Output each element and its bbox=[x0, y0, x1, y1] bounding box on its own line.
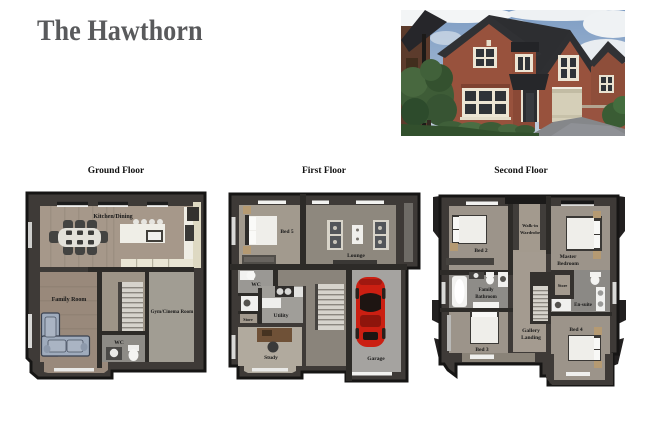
svg-text:Utility: Utility bbox=[274, 313, 289, 319]
svg-text:WC: WC bbox=[114, 340, 124, 346]
svg-text:Gym/Cinema Room: Gym/Cinema Room bbox=[151, 310, 194, 315]
svg-text:Bed 5: Bed 5 bbox=[280, 229, 294, 235]
svg-text:Bathroom: Bathroom bbox=[475, 295, 497, 300]
svg-text:Gallery: Gallery bbox=[522, 328, 540, 334]
svg-text:Bed 4: Bed 4 bbox=[569, 327, 583, 333]
svg-text:Store: Store bbox=[243, 317, 253, 322]
svg-text:Kitchen/Dining: Kitchen/Dining bbox=[93, 214, 132, 220]
svg-text:Wardrobe: Wardrobe bbox=[520, 230, 540, 235]
svg-text:Master: Master bbox=[560, 254, 577, 260]
svg-text:Bed 2: Bed 2 bbox=[474, 248, 488, 254]
svg-text:Family Room: Family Room bbox=[52, 297, 87, 303]
svg-text:En-suite: En-suite bbox=[574, 303, 593, 308]
svg-text:WC: WC bbox=[251, 282, 261, 288]
svg-text:Bedroom: Bedroom bbox=[557, 261, 579, 267]
svg-text:Garage: Garage bbox=[367, 356, 385, 362]
svg-text:Walk-in: Walk-in bbox=[522, 223, 538, 228]
svg-text:Lounge: Lounge bbox=[347, 253, 365, 259]
svg-text:Family: Family bbox=[479, 288, 494, 293]
svg-text:Store: Store bbox=[558, 283, 568, 288]
svg-text:Landing: Landing bbox=[521, 335, 541, 341]
svg-text:Bed 3: Bed 3 bbox=[475, 347, 489, 353]
svg-text:Study: Study bbox=[264, 355, 278, 361]
